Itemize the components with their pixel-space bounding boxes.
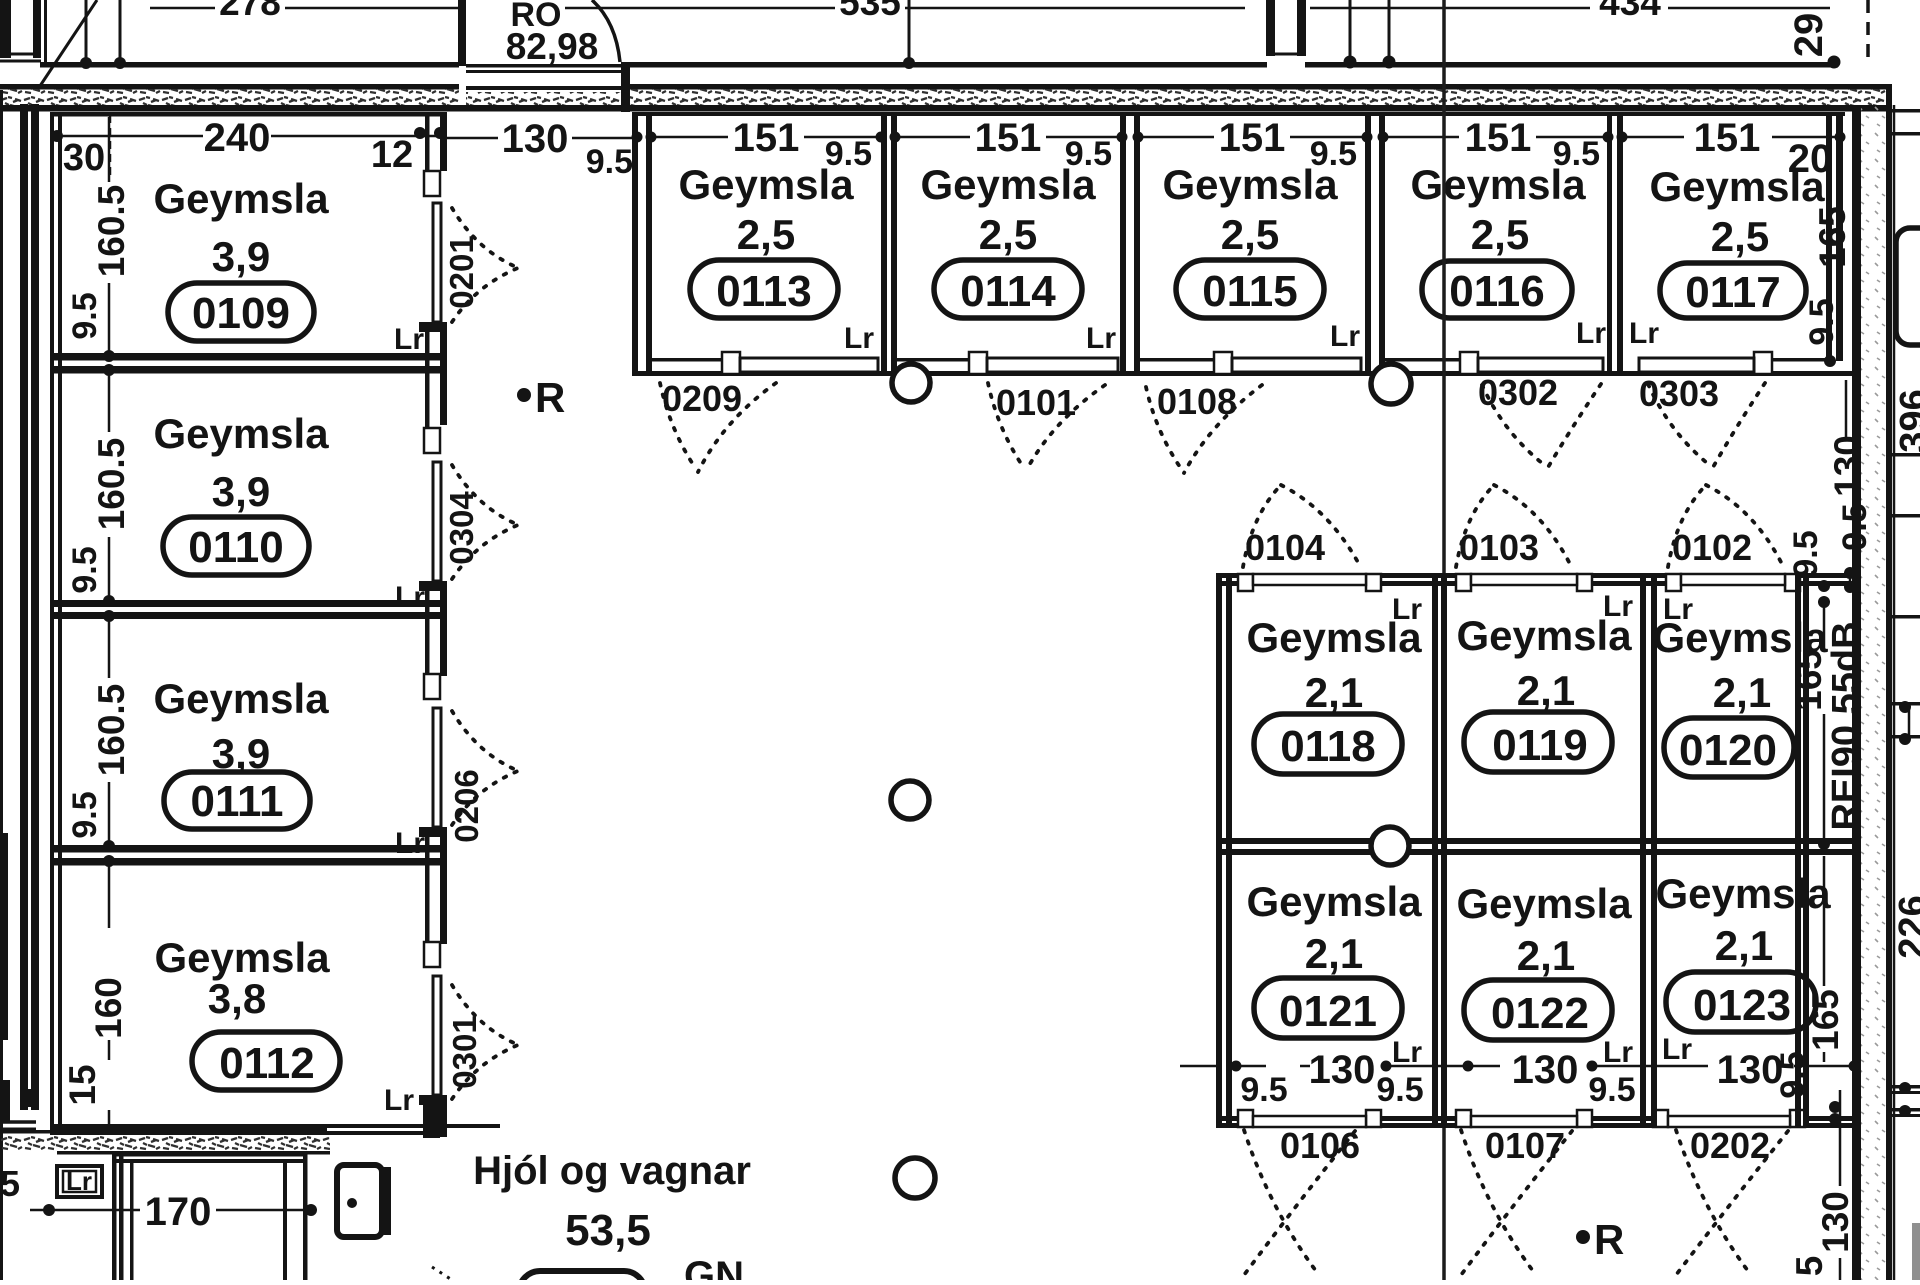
- svg-text:278: 278: [219, 0, 281, 23]
- svg-text:9.5: 9.5: [1310, 135, 1357, 173]
- svg-text:0202: 0202: [1690, 1125, 1770, 1166]
- svg-text:2,1: 2,1: [1305, 669, 1363, 716]
- svg-text:Lr: Lr: [1603, 590, 1633, 623]
- svg-text:Lr: Lr: [1663, 593, 1693, 626]
- svg-text:30: 30: [63, 137, 105, 179]
- svg-text:151: 151: [975, 116, 1042, 160]
- svg-text:0122: 0122: [1491, 989, 1589, 1038]
- svg-text:Lr: Lr: [1086, 322, 1116, 355]
- svg-text:130: 130: [1815, 1191, 1856, 1253]
- svg-text:2,1: 2,1: [1517, 667, 1575, 714]
- svg-text:0107: 0107: [1485, 1125, 1565, 1166]
- svg-text:53,5: 53,5: [565, 1206, 651, 1255]
- svg-text:0116: 0116: [1449, 267, 1544, 316]
- svg-text:165: 165: [1812, 206, 1853, 268]
- svg-text:9.5: 9.5: [1588, 1071, 1635, 1109]
- svg-text:0112: 0112: [219, 1039, 314, 1088]
- svg-text:5: 5: [1789, 1256, 1830, 1277]
- svg-text:Lr: Lr: [1576, 317, 1606, 350]
- svg-text:0103: 0103: [1459, 527, 1539, 568]
- svg-text:0121: 0121: [1279, 987, 1377, 1036]
- svg-text:Geymsla: Geymsla: [154, 934, 330, 981]
- svg-text:160.5: 160.5: [91, 438, 132, 531]
- svg-text:Lr: Lr: [66, 1166, 92, 1196]
- svg-text:0304: 0304: [443, 491, 480, 565]
- svg-text:0302: 0302: [1478, 372, 1558, 413]
- svg-text:Lr: Lr: [1392, 593, 1422, 626]
- svg-text:Geymsla: Geymsla: [153, 410, 329, 457]
- svg-text:15: 15: [62, 1064, 103, 1105]
- svg-text:R: R: [1594, 1216, 1624, 1263]
- svg-text:Lr: Lr: [1603, 1036, 1633, 1069]
- svg-text:0118: 0118: [1280, 722, 1375, 771]
- svg-text:Lr: Lr: [1392, 1036, 1422, 1069]
- svg-text:12: 12: [371, 134, 413, 176]
- svg-text:20: 20: [1788, 137, 1833, 181]
- svg-text:0119: 0119: [1492, 721, 1587, 770]
- svg-text:9.5: 9.5: [586, 143, 633, 181]
- svg-text:9.5: 9.5: [66, 791, 104, 838]
- svg-text:130: 130: [1309, 1048, 1376, 1092]
- svg-text:Lr: Lr: [1629, 317, 1659, 350]
- svg-text:9.5: 9.5: [1376, 1071, 1423, 1109]
- svg-text:0115: 0115: [1202, 267, 1297, 316]
- svg-text:2,5: 2,5: [1471, 211, 1529, 258]
- svg-text:0206: 0206: [448, 769, 485, 842]
- svg-text:0114: 0114: [960, 267, 1056, 316]
- svg-text:Geymsla: Geymsla: [1246, 878, 1422, 925]
- svg-text:Geymsla: Geymsla: [153, 675, 329, 722]
- svg-text:0209: 0209: [662, 378, 742, 419]
- svg-text:9.5: 9.5: [1803, 298, 1841, 345]
- svg-text:2,1: 2,1: [1713, 669, 1771, 716]
- svg-text:0110: 0110: [188, 523, 283, 572]
- svg-text:0117: 0117: [1685, 268, 1780, 317]
- svg-text:165: 165: [1805, 989, 1846, 1051]
- svg-text:3,8: 3,8: [208, 975, 266, 1022]
- svg-text:Geymsla: Geymsla: [153, 175, 329, 222]
- svg-text:130: 130: [1512, 1048, 1579, 1092]
- svg-text:0120: 0120: [1679, 726, 1777, 775]
- svg-text:151: 151: [1219, 116, 1286, 160]
- svg-text:9.5: 9.5: [66, 546, 104, 593]
- svg-text:Lr: Lr: [844, 322, 874, 355]
- svg-text:151: 151: [733, 116, 800, 160]
- svg-text:29: 29: [1787, 13, 1831, 58]
- svg-text:0201: 0201: [443, 235, 480, 308]
- svg-text:0113: 0113: [716, 267, 811, 316]
- svg-text:9.5: 9.5: [1553, 135, 1600, 173]
- svg-text:5: 5: [0, 1163, 20, 1204]
- svg-text:2,1: 2,1: [1517, 932, 1575, 979]
- svg-text:0303: 0303: [1639, 373, 1719, 414]
- svg-text:0109: 0109: [192, 289, 290, 338]
- svg-text:151: 151: [1694, 116, 1761, 160]
- svg-text:3,9: 3,9: [212, 468, 270, 515]
- svg-text:9.5: 9.5: [1774, 1051, 1812, 1098]
- svg-text:160.5: 160.5: [91, 185, 132, 278]
- svg-text:REI90 55dB: REI90 55dB: [1825, 621, 1867, 830]
- svg-text:2,5: 2,5: [979, 211, 1037, 258]
- svg-text:Geymsla: Geymsla: [1655, 870, 1831, 917]
- svg-text:Lr: Lr: [384, 1084, 414, 1117]
- svg-text:151: 151: [1465, 116, 1532, 160]
- svg-text:240: 240: [204, 116, 271, 160]
- svg-text:9.5: 9.5: [1065, 135, 1112, 173]
- svg-text:9.5: 9.5: [1787, 530, 1825, 577]
- svg-text:Lr: Lr: [1662, 1033, 1692, 1066]
- svg-text:0102: 0102: [1672, 527, 1752, 568]
- svg-text:226: 226: [1892, 895, 1920, 958]
- svg-text:0123: 0123: [1693, 981, 1791, 1030]
- svg-text:Geymsla: Geymsla: [1456, 880, 1632, 927]
- svg-text:130: 130: [502, 117, 569, 161]
- svg-text:0106: 0106: [1280, 1125, 1360, 1166]
- svg-text:0111: 0111: [190, 777, 283, 826]
- svg-text:Lr: Lr: [1330, 320, 1360, 353]
- svg-text:2,5: 2,5: [1221, 211, 1279, 258]
- svg-text:R: R: [535, 374, 565, 421]
- svg-text:2,5: 2,5: [1711, 213, 1769, 260]
- svg-text:165: 165: [1788, 649, 1829, 711]
- svg-text:2,1: 2,1: [1305, 930, 1363, 977]
- svg-text:434: 434: [1599, 0, 1661, 23]
- svg-text:9.5: 9.5: [66, 292, 104, 339]
- svg-text:160.5: 160.5: [91, 684, 132, 777]
- svg-text:9.5: 9.5: [1240, 1071, 1287, 1109]
- svg-text:160: 160: [88, 977, 129, 1039]
- svg-text:0104: 0104: [1245, 527, 1325, 568]
- svg-text:2,1: 2,1: [1715, 922, 1773, 969]
- svg-text:396: 396: [1893, 389, 1920, 452]
- svg-text:2,5: 2,5: [737, 211, 795, 258]
- svg-text:GN: GN: [684, 1254, 744, 1280]
- svg-text:9.5: 9.5: [825, 135, 872, 173]
- svg-text:9.5: 9.5: [1836, 503, 1874, 550]
- svg-text:170: 170: [145, 1190, 212, 1234]
- svg-text:Hjól og vagnar: Hjól og vagnar: [473, 1149, 751, 1193]
- svg-text:0108: 0108: [1157, 381, 1237, 422]
- svg-text:3,9: 3,9: [212, 233, 270, 280]
- svg-text:535: 535: [839, 0, 901, 23]
- svg-text:82,98: 82,98: [506, 26, 599, 67]
- svg-text:130: 130: [1827, 435, 1868, 497]
- svg-text:0301: 0301: [446, 1015, 483, 1088]
- svg-text:0101: 0101: [996, 382, 1076, 423]
